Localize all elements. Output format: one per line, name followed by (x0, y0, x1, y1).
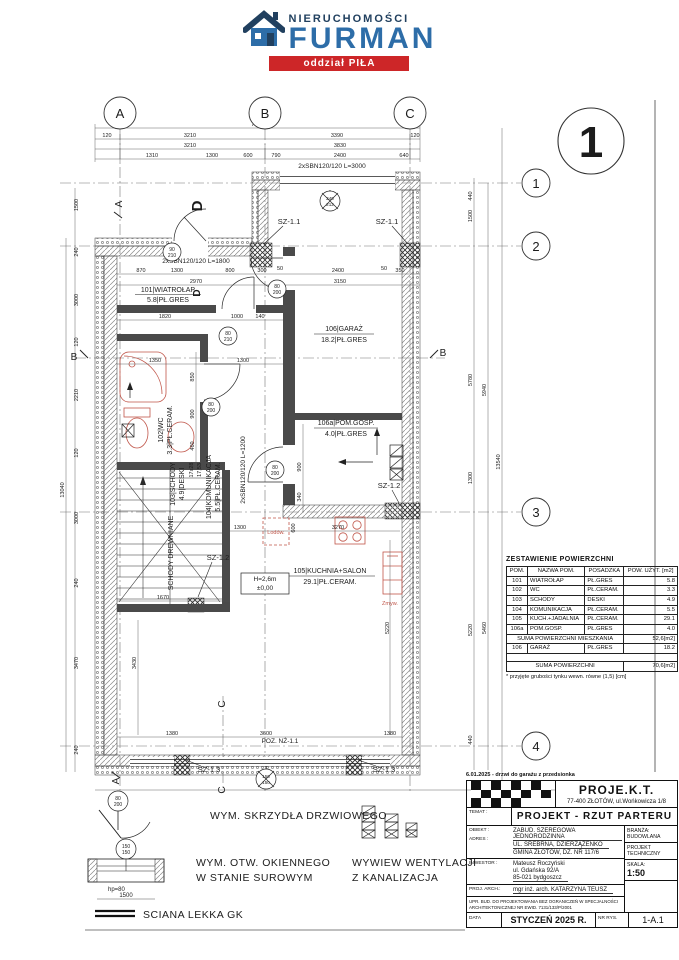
dim-label: 600 (243, 153, 252, 159)
legend-door-size: 200 (114, 802, 123, 808)
inwestor-name: Mateusz Roczyński (513, 861, 622, 867)
cell: 29.1 (624, 615, 678, 625)
legend-window-label: W STANIE SUROWYM (196, 872, 313, 884)
inwestor-block: INWESTOR : Mateusz Roczyński ul. Gdańska… (467, 859, 624, 885)
cell: PŁ.CERAM. (585, 615, 624, 625)
dim-label: 800 (225, 268, 234, 274)
cell: DESKI (585, 595, 624, 605)
room-label: 18.2|PŁ.GRES (321, 337, 367, 344)
beam-label: 2xSBN120/120 L=3000 (298, 163, 366, 170)
cell: 5.5 (624, 605, 678, 615)
dim-label: 1500 (74, 199, 80, 211)
skala-value: 1:50 (627, 868, 645, 878)
level-label: ±0,00 (257, 585, 274, 592)
legend-window-label: WYM. OTW. OKIENNEGO (196, 857, 330, 869)
dim-label: 120 (410, 133, 419, 139)
cell: 101 (507, 576, 528, 586)
dim-label: 50 (381, 266, 387, 272)
table-sum-row: SUMA POWIERZCHNI MIESZKANIA 52,6[m2] (507, 634, 678, 644)
dim-label: 1300 (468, 472, 474, 484)
office-name: PROJE.K.T. (579, 783, 654, 797)
room-label: 4.0|PŁ.GRES (325, 431, 367, 438)
door-size: 200 (271, 471, 280, 477)
dim-label: 3830 (334, 143, 346, 149)
dim-label: 13540 (496, 454, 502, 469)
legend-door-label: WYM. SKRZYDŁA DRZWIOWEGO (210, 810, 387, 822)
fridge-label: Lodów. (267, 530, 285, 536)
sum-label: SUMA POWIERZCHNI (507, 661, 624, 671)
table-row: 105 KUCH.+JADALNIA PŁ.CERAM. 29.1 (507, 615, 678, 625)
height-label: H=2,6m (254, 576, 277, 583)
nr-label: NR RYS. (595, 913, 629, 927)
dim-label: 3600 (260, 731, 272, 737)
door-size: 200 (207, 408, 216, 414)
dim-label: 1300 (171, 268, 183, 274)
cell: 104 (507, 605, 528, 615)
sink-label: Zmyw. (382, 601, 398, 607)
sanitary-fixtures (120, 352, 402, 594)
cell: PŁ.CERAM. (585, 586, 624, 596)
cell: 3.3 (624, 586, 678, 596)
revision-note: 6.01.2025 - drzwi do garażu z przedsionk… (466, 772, 678, 778)
dim-label: 1500 (468, 210, 474, 222)
col-header: NAZWA POM. (528, 567, 585, 577)
stairs-note: 17,53 (197, 463, 203, 477)
branza-value: BUDOWLANA (627, 834, 660, 840)
adres-value: UL. SREBRNA, DZIERZĄŻENKO (513, 842, 609, 849)
dim-label: 850 (190, 372, 196, 381)
sz-label: SZ-1.2 (378, 481, 401, 490)
cell: 106a (507, 624, 528, 634)
section-mark-c: C (217, 786, 228, 793)
inwestor-street: ul. Gdańska 92/A (513, 868, 622, 874)
license-text: UPR. BUD. DO PROJEKTOWANIA BEZ OGRANICZE… (469, 899, 618, 904)
dim-label: 5940 (482, 384, 488, 396)
dim-label: 5220 (468, 624, 474, 636)
table-row: 101 WIATROŁAP PŁ.GRES 5.8 (507, 576, 678, 586)
dim-label: 3000 (74, 512, 80, 524)
dim-label: 3210 (184, 133, 196, 139)
cell: KUCH.+JADALNIA (528, 615, 585, 625)
cell: 5.8 (624, 576, 678, 586)
room-label: 3.3|PŁ.CERAM. (167, 405, 174, 454)
dim-label: 2400 (332, 268, 344, 274)
dim-label: 3390 (331, 133, 343, 139)
drawing-title: PROJEKT - RZUT PARTERU (512, 808, 677, 825)
sz-label: SZ-1.1 (376, 217, 399, 226)
dim-label: 240 (74, 578, 80, 587)
room-label: 104|KOMUNIKACJA (206, 455, 213, 519)
dim-label: 1300 (237, 358, 249, 364)
room-label: 5.8|PŁ.GRES (147, 297, 189, 304)
dim-label: 440 (468, 191, 474, 200)
grid-markers: A B C 1 2 3 4 B B A A C C (71, 97, 550, 794)
table-row: 104 KOMUNIKACJA PŁ.CERAM. 5.5 (507, 605, 678, 615)
titleblock-header: PROJE.K.T. 77-400 ZŁOTÓW, ul.Wońkowicza … (467, 781, 677, 808)
cell: POM.GOSP. (528, 624, 585, 634)
sz-label: SZ-1.2 (207, 553, 230, 562)
room-label: 4.9|DESKI (179, 468, 186, 501)
arch-label: PROJ. ARCH.: (469, 887, 509, 892)
col-header: POM. (507, 567, 528, 577)
projekt-cell: PROJEKT TECHNICZNY (625, 843, 677, 860)
dim-label: 3470 (74, 657, 80, 669)
legend-1500: 1500 (119, 893, 133, 899)
room-label: 5.5|PŁ.CERAM. (215, 462, 222, 511)
cell: 105 (507, 615, 528, 625)
sz-label: SZ-1.3 (198, 765, 221, 774)
dim-label: 1350 (149, 358, 161, 364)
grid-row-3: 3 (532, 505, 539, 520)
grid-row-4: 4 (532, 739, 539, 754)
arch-name: mgr inż. arch. KATARZYNA TEUSZ (513, 887, 613, 894)
dim-label: 1670 (157, 595, 169, 601)
cell: 4.9 (624, 595, 678, 605)
dim-label: 1380 (166, 731, 178, 737)
dim-label: 3150 (334, 279, 346, 285)
dim-label: 1310 (146, 153, 158, 159)
room-label: 106|GARAŻ (325, 324, 363, 333)
grid-col-c: C (405, 106, 414, 121)
dim-label: 600 (291, 523, 297, 532)
room-label: 106a|POM.GOSP. (318, 420, 375, 427)
legend-wall-label: SCIANA LEKKA GK (143, 909, 243, 921)
dim-label: 2970 (190, 279, 202, 285)
table-header-row: POM. NAZWA POM. POSADZKA POW. UŻYT. [m2] (507, 567, 678, 577)
legend-vent-label: WYWIEW WENTYLACJI (352, 857, 477, 869)
cell: PŁ.CERAM. (585, 605, 624, 615)
cell: KOMUNIKACJA (528, 605, 585, 615)
cell: PŁ.GRES (585, 644, 624, 654)
branza-cell: BRANŻA: BUDOWLANA (625, 826, 677, 843)
area-summary-table: ZESTAWIENIE POWIERZCHNI POM. NAZWA POM. … (506, 556, 678, 680)
dim-label: 870 (136, 268, 145, 274)
legend-vent-label: Z KANALIZACJA (352, 872, 438, 884)
obiekt-label: OBIEKT : (469, 828, 509, 833)
door-size: 200 (273, 290, 282, 296)
obiekt-block: OBIEKT : ADRES : ZABUD. SZEREGOWA JEDNOR… (467, 826, 624, 859)
title-block: 6.01.2025 - drzwi do garażu z przedsionk… (466, 772, 678, 928)
dim-label: 340 (297, 492, 303, 501)
room-label: 105|KUCHNIA+SALON (294, 568, 367, 575)
dim-label: 640 (399, 153, 408, 159)
dim-label: 900 (297, 462, 303, 471)
dim-label: 900 (190, 409, 196, 418)
section-mark-a: A (114, 200, 125, 207)
table-row: 102 WC PŁ.CERAM. 3.3 (507, 586, 678, 596)
cell: WC (528, 586, 585, 596)
lintel-label: POZ. NŻ-1.1 (262, 736, 299, 745)
drawing-sheet: { "logo": {"brand_top":"NIERUCHOMOŚCI","… (0, 0, 679, 960)
section-mark-b: B (440, 348, 447, 359)
dim-label: 3000 (74, 294, 80, 306)
section-mark-c: C (217, 700, 228, 707)
table-footnote: * przyjęte grubości tynku wewn. równe (1… (506, 674, 678, 680)
dim-label: 1380 (384, 731, 396, 737)
dim-label: 440 (468, 735, 474, 744)
section-mark-b: B (71, 352, 78, 363)
table-empty-row (507, 653, 678, 661)
col-header: POW. UŻYT. [m2] (624, 567, 678, 577)
dim-label: 120 (74, 448, 80, 457)
dim-label: 1300 (234, 525, 246, 531)
adres-label: ADRES : (469, 837, 509, 842)
grid-row-1: 1 (532, 176, 539, 191)
cell: 106 (507, 644, 528, 654)
beam-label: 2xSBN120/120 L=1200 (240, 436, 247, 504)
sz-label: SZ-1.3 (373, 765, 396, 774)
cell: 4.0 (624, 624, 678, 634)
sz-label: SZ-1.1 (278, 217, 301, 226)
license-block: UPR. BUD. DO PROJEKTOWANIA BEZ OGRANICZE… (467, 897, 624, 912)
dim-label: 5220 (385, 622, 391, 634)
obiekt-value: ZABUD. SZEREGOWA JEDNORODZINNA (513, 828, 622, 841)
dim-label: 120 (74, 337, 80, 346)
cell: WIATROŁAP (528, 576, 585, 586)
dim-label: 5460 (482, 622, 488, 634)
adres-value2: GMINA ZŁOTÓW, DZ. NR 117/6 (513, 850, 622, 856)
room-label: 103|SCHODY (170, 462, 177, 506)
sum-value: 70,6[m2] (624, 661, 678, 671)
dim-label: 460 (190, 441, 196, 450)
section-mark-a: A (111, 777, 122, 784)
drawing-number: 1-A.1 (629, 913, 677, 927)
skala-cell: SKALA: 1:50 (625, 860, 677, 881)
table-sum-row: SUMA POWIERZCHNI 70,6[m2] (507, 661, 678, 671)
area-table-title: ZESTAWIENIE POWIERZCHNI (506, 556, 678, 563)
legend: 80 200 WYM. SKRZYDŁA DRZWIOWEGO 150 150 … (85, 791, 477, 930)
cell: 103 (507, 595, 528, 605)
cell: SCHODY (528, 595, 585, 605)
titleblock-body: OBIEKT : ADRES : ZABUD. SZEREGOWA JEDNOR… (467, 826, 677, 912)
dim-label: 3270 (332, 525, 344, 531)
cell: 18.2 (624, 644, 678, 654)
office-address: 77-400 ZŁOTÓW, ul.Wońkowicza 1/8 (567, 799, 666, 805)
grid-row-2: 2 (532, 239, 539, 254)
sum-label: SUMA POWIERZCHNI MIESZKANIA (507, 634, 624, 644)
sink-icon (383, 552, 402, 594)
dim-label: 3430 (132, 657, 138, 669)
dim-label: 1000 (231, 314, 243, 320)
table-row: 103 SCHODY DESKI 4.9 (507, 595, 678, 605)
dim-label: 5780 (468, 374, 474, 386)
dim-label: 2210 (74, 389, 80, 401)
table-row: 106a POM.GOSP. PŁ.GRES 4.0 (507, 624, 678, 634)
date-row: DATA STYCZEŃ 2025 R. NR RYS. 1-A.1 (467, 912, 677, 927)
architect-block: PROJ. ARCH.: mgr inż. arch. KATARZYNA TE… (467, 885, 624, 897)
dim-label: 120 (102, 133, 111, 139)
office-logo (467, 781, 556, 807)
dim-label: 350 (395, 268, 404, 274)
inwestor-city: 85-021 bydgoszcz (513, 875, 568, 882)
cell: PŁ.GRES (585, 624, 624, 634)
door-size: 210 (224, 337, 233, 343)
dim-label: 2400 (334, 153, 346, 159)
temat-label: TEMAT : (467, 808, 512, 825)
inwestor-label: INWESTOR : (469, 861, 509, 866)
room-label: 102|WC (158, 417, 165, 442)
room-label: 101|WIATROŁAP (141, 287, 196, 294)
door-threshold-mark: D (189, 200, 206, 211)
titleblock-temat: TEMAT : PROJEKT - RZUT PARTERU (467, 808, 677, 826)
date-value: STYCZEŃ 2025 R. (502, 913, 595, 927)
dim-label: 140 (255, 314, 264, 320)
wood-stairs-label: SCHODY DREWNIANE (168, 515, 175, 590)
grid-col-b: B (261, 106, 270, 121)
data-label: DATA (467, 913, 502, 927)
sum-value: 52,6[m2] (624, 634, 678, 644)
dim-label: 3210 (184, 143, 196, 149)
dim-label: 240 (74, 247, 80, 256)
dim-label: 13040 (60, 482, 66, 497)
dim-label: 50 (277, 266, 283, 272)
dim-label: 1820 (159, 314, 171, 320)
toilet-icon (124, 408, 150, 417)
cell: GARAŻ (528, 644, 585, 654)
dim-label: 1300 (206, 153, 218, 159)
dim-label: 300 (257, 268, 266, 274)
stairs-note: 17x28 (189, 463, 195, 478)
table-row: 106 GARAŻ PŁ.GRES 18.2 (507, 644, 678, 654)
cell: PŁ.GRES (585, 576, 624, 586)
dimension-lines (66, 124, 555, 790)
empty-cell (625, 881, 677, 912)
dim-label: 790 (271, 153, 280, 159)
legend-window-size: 150 (122, 850, 131, 856)
grid-col-a: A (116, 106, 125, 121)
sheet-number-text: 1 (579, 118, 603, 167)
dim-label: 240 (74, 745, 80, 754)
license-text2: ARCHITEKTONICZNEJ NR EWID. 7131/133/P/20… (469, 905, 572, 910)
walls (95, 172, 420, 775)
door-threshold-mark: D (192, 289, 203, 296)
cell: 102 (507, 586, 528, 596)
room-label: 29.1|PŁ.CERAM. (303, 579, 356, 586)
projekt-line2: TECHNICZNY (627, 851, 660, 857)
col-header: POSADZKA (585, 567, 624, 577)
door-size: 210 (168, 253, 177, 259)
